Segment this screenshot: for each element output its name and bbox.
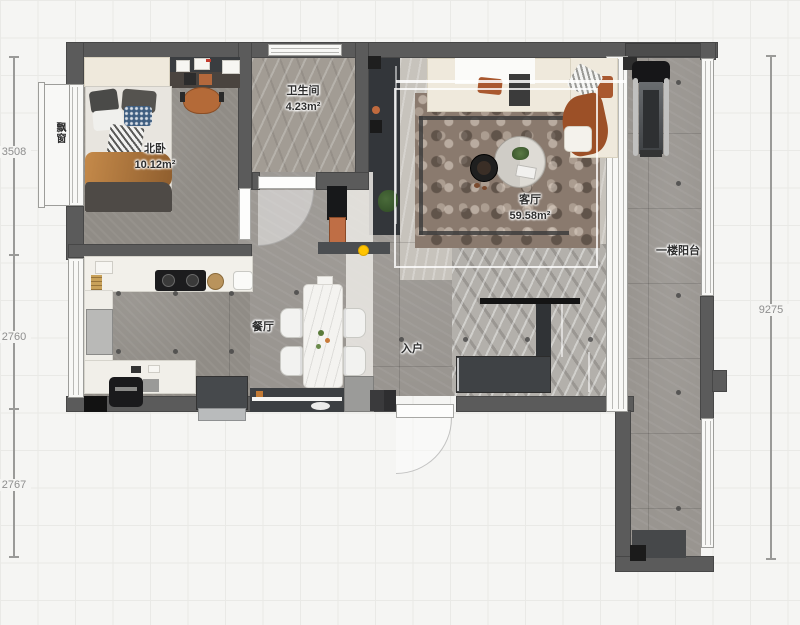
dining-chair[interactable] xyxy=(343,308,366,338)
fridge[interactable] xyxy=(86,309,113,355)
cooktop-burner xyxy=(186,274,199,287)
cabinet-edge-line xyxy=(457,358,459,391)
bedroom-door[interactable] xyxy=(239,188,251,240)
window-glass-line xyxy=(73,261,74,395)
desk-red-item xyxy=(206,59,211,62)
treadmill-rail xyxy=(633,78,638,156)
dimension-tick xyxy=(9,556,19,558)
bay-window-outer-frame xyxy=(38,82,45,208)
spotlight xyxy=(173,291,178,296)
tile-joint xyxy=(628,358,701,359)
desk-item-orange[interactable] xyxy=(199,74,212,85)
tile-joint xyxy=(628,208,701,209)
curtain-line xyxy=(396,80,626,83)
counter-item xyxy=(131,366,141,373)
vase-orange[interactable] xyxy=(372,106,380,114)
potted-plant-orange[interactable] xyxy=(329,217,346,243)
ceiling-outline xyxy=(394,88,598,268)
wall-right-stub[interactable] xyxy=(712,370,727,392)
coffee-machine-detail xyxy=(115,387,137,391)
room-area: 4.23m² xyxy=(272,100,334,116)
spotlight xyxy=(588,337,593,342)
shoe-cabinet[interactable] xyxy=(456,356,551,393)
balcony-window-upper[interactable] xyxy=(701,58,714,296)
room-area: 10.12m² xyxy=(120,158,190,174)
window-glass-line xyxy=(623,59,624,409)
shoe-cabinet-vertical[interactable] xyxy=(536,304,551,358)
room-label-bathroom: 卫生间 4.23m² xyxy=(272,84,334,116)
tile-joint xyxy=(628,283,701,284)
desk-organizer[interactable] xyxy=(222,60,240,74)
dining-table[interactable] xyxy=(303,284,343,388)
floorplan-canvas: 3508 2760 2767 9275 xyxy=(0,0,800,625)
storage-box[interactable] xyxy=(370,120,382,133)
window-glass-line xyxy=(271,52,339,53)
room-name: 客厅 xyxy=(494,193,566,209)
desk-chair-arm xyxy=(180,92,185,102)
window-glass-line xyxy=(72,87,73,203)
balcony-window-lower[interactable] xyxy=(701,418,714,548)
window-glass-line xyxy=(77,87,78,203)
sideboard-tv xyxy=(252,397,342,401)
tile-joint xyxy=(370,366,452,367)
viewpoint-marker[interactable] xyxy=(358,245,369,256)
window-glass-line xyxy=(271,48,339,49)
threshold-shelf[interactable] xyxy=(318,242,390,254)
dimension-tick xyxy=(9,254,19,256)
desk-item-dark[interactable] xyxy=(184,73,196,85)
table-food-item xyxy=(325,338,330,343)
room-label-living: 客厅 59.58m² xyxy=(494,193,566,225)
treadmill-belt xyxy=(643,90,659,148)
balcony-black-box[interactable] xyxy=(630,545,646,561)
room-label-entry: 入户 xyxy=(392,342,432,358)
floor-accent-line xyxy=(561,303,563,357)
kitchen-sink[interactable] xyxy=(233,271,253,290)
bread-basket[interactable] xyxy=(91,275,102,290)
desk-chair[interactable] xyxy=(183,87,221,114)
wardrobe[interactable] xyxy=(84,57,170,87)
floor-accent-line xyxy=(588,352,590,392)
spotlight xyxy=(463,337,468,342)
room-label-bedroom: 北卧 10.12m² xyxy=(120,142,190,174)
wall-left-upper[interactable] xyxy=(66,42,84,86)
spotlight xyxy=(116,349,121,354)
kitchen-island-step xyxy=(198,408,246,421)
wall-bedroom-right[interactable] xyxy=(238,42,252,190)
window-glass-line xyxy=(710,61,711,293)
wall-bathroom-right[interactable] xyxy=(355,42,369,178)
cooktop-burner xyxy=(162,274,175,287)
entry-door-swing xyxy=(396,418,452,474)
bathroom-door[interactable] xyxy=(258,176,316,189)
tile-joint xyxy=(631,433,701,434)
dimension-tick xyxy=(9,56,19,58)
wall-balcony-left-lower[interactable] xyxy=(615,410,631,560)
spotlight xyxy=(676,181,681,186)
counter-item xyxy=(148,365,160,373)
dining-chair[interactable] xyxy=(280,308,303,338)
spotlight xyxy=(173,349,178,354)
spotlight xyxy=(676,80,681,85)
treadmill-rail xyxy=(664,78,669,156)
room-label-bay-window: 飘窗 xyxy=(52,122,67,144)
kitchen-island-unit[interactable] xyxy=(196,376,248,410)
spotlight xyxy=(676,293,681,298)
entry-door[interactable] xyxy=(396,404,454,418)
bathroom-window[interactable] xyxy=(268,44,342,56)
entry-bench-dark[interactable] xyxy=(370,390,396,411)
room-label-balcony: 一楼阳台 xyxy=(648,244,708,260)
spotlight xyxy=(229,291,234,296)
room-name: 北卧 xyxy=(120,142,190,158)
kitchen-grey-box[interactable] xyxy=(143,379,159,392)
spotlight xyxy=(116,291,121,296)
dimension-label-2767: 2767 xyxy=(0,479,31,491)
dimension-tick xyxy=(766,558,776,560)
dining-chair[interactable] xyxy=(280,346,303,376)
treadmill-end-bar xyxy=(640,150,662,157)
spotlight xyxy=(676,390,681,395)
hall-cabinet[interactable] xyxy=(327,186,347,220)
tile-joint xyxy=(631,508,701,509)
table-food-item xyxy=(316,344,321,349)
spotlight xyxy=(229,349,234,354)
sideboard-plate xyxy=(311,402,330,410)
spotlight xyxy=(525,337,530,342)
printer[interactable] xyxy=(176,60,190,72)
corner-block xyxy=(368,56,381,69)
dimension-tick xyxy=(766,55,776,57)
coffee-machine[interactable] xyxy=(109,377,143,407)
wall-right-mid[interactable] xyxy=(700,296,714,420)
dining-chair[interactable] xyxy=(343,346,366,376)
window-glass-line xyxy=(78,261,79,395)
wall-niche-bar xyxy=(480,298,580,304)
wok-pan[interactable] xyxy=(207,273,224,290)
bay-window-sill[interactable] xyxy=(44,84,70,206)
spotlight xyxy=(676,506,681,511)
table-food-item xyxy=(318,330,324,336)
window-glass-line xyxy=(705,421,706,545)
small-appliance[interactable] xyxy=(95,261,113,274)
window-glass-line xyxy=(710,421,711,545)
dimension-label-2760: 2760 xyxy=(0,331,31,343)
bed-pillow-blue xyxy=(124,106,152,126)
desk-chair-arm xyxy=(219,92,224,102)
black-mat xyxy=(84,396,107,412)
sideboard-handle-orange xyxy=(256,391,263,397)
dimension-label-3508: 3508 xyxy=(0,146,31,158)
room-label-dining: 餐厅 xyxy=(243,320,283,336)
room-area: 59.58m² xyxy=(494,209,566,225)
bed-foot-bench xyxy=(85,182,172,212)
kitchen-window[interactable] xyxy=(68,258,84,398)
window-glass-line xyxy=(618,59,619,409)
dimension-label-9275: 9275 xyxy=(753,304,789,316)
dimension-tick xyxy=(9,408,19,410)
room-name: 卫生间 xyxy=(272,84,334,100)
spotlight xyxy=(294,290,299,295)
